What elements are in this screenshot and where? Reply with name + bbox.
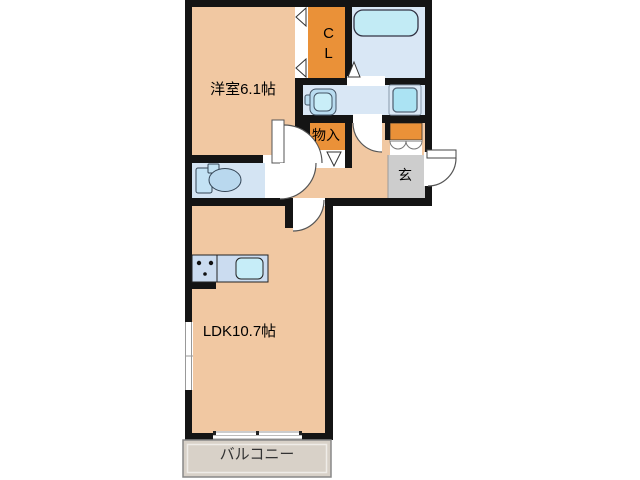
toilet-door-strip: [265, 160, 280, 198]
window-left: [184, 322, 193, 390]
kitchen-sink-icon: [236, 258, 263, 279]
kitchen-half-wall: [192, 282, 216, 289]
closet-cl: [308, 7, 345, 78]
bathtub-icon: [354, 10, 418, 36]
washroom-door-opening: [353, 114, 382, 124]
washing-machine-pan-icon: [389, 85, 421, 115]
balcony: [183, 440, 331, 477]
floorplan-canvas: 洋室6.1帖 CL 物入 玄 LDK10.7帖 バルコニー: [0, 0, 640, 480]
entrance-door-leaf: [427, 150, 456, 158]
shoe-cabinet: [390, 123, 422, 140]
entrance-genkan: [388, 155, 425, 198]
western-room-door-leaf: [272, 120, 284, 163]
floorplan-drawing: [0, 0, 640, 480]
kitchen-counter: [192, 255, 268, 282]
ldk-door-wall-stub: [285, 198, 293, 228]
window-balcony: [213, 431, 302, 440]
room-ldk: [192, 205, 325, 433]
